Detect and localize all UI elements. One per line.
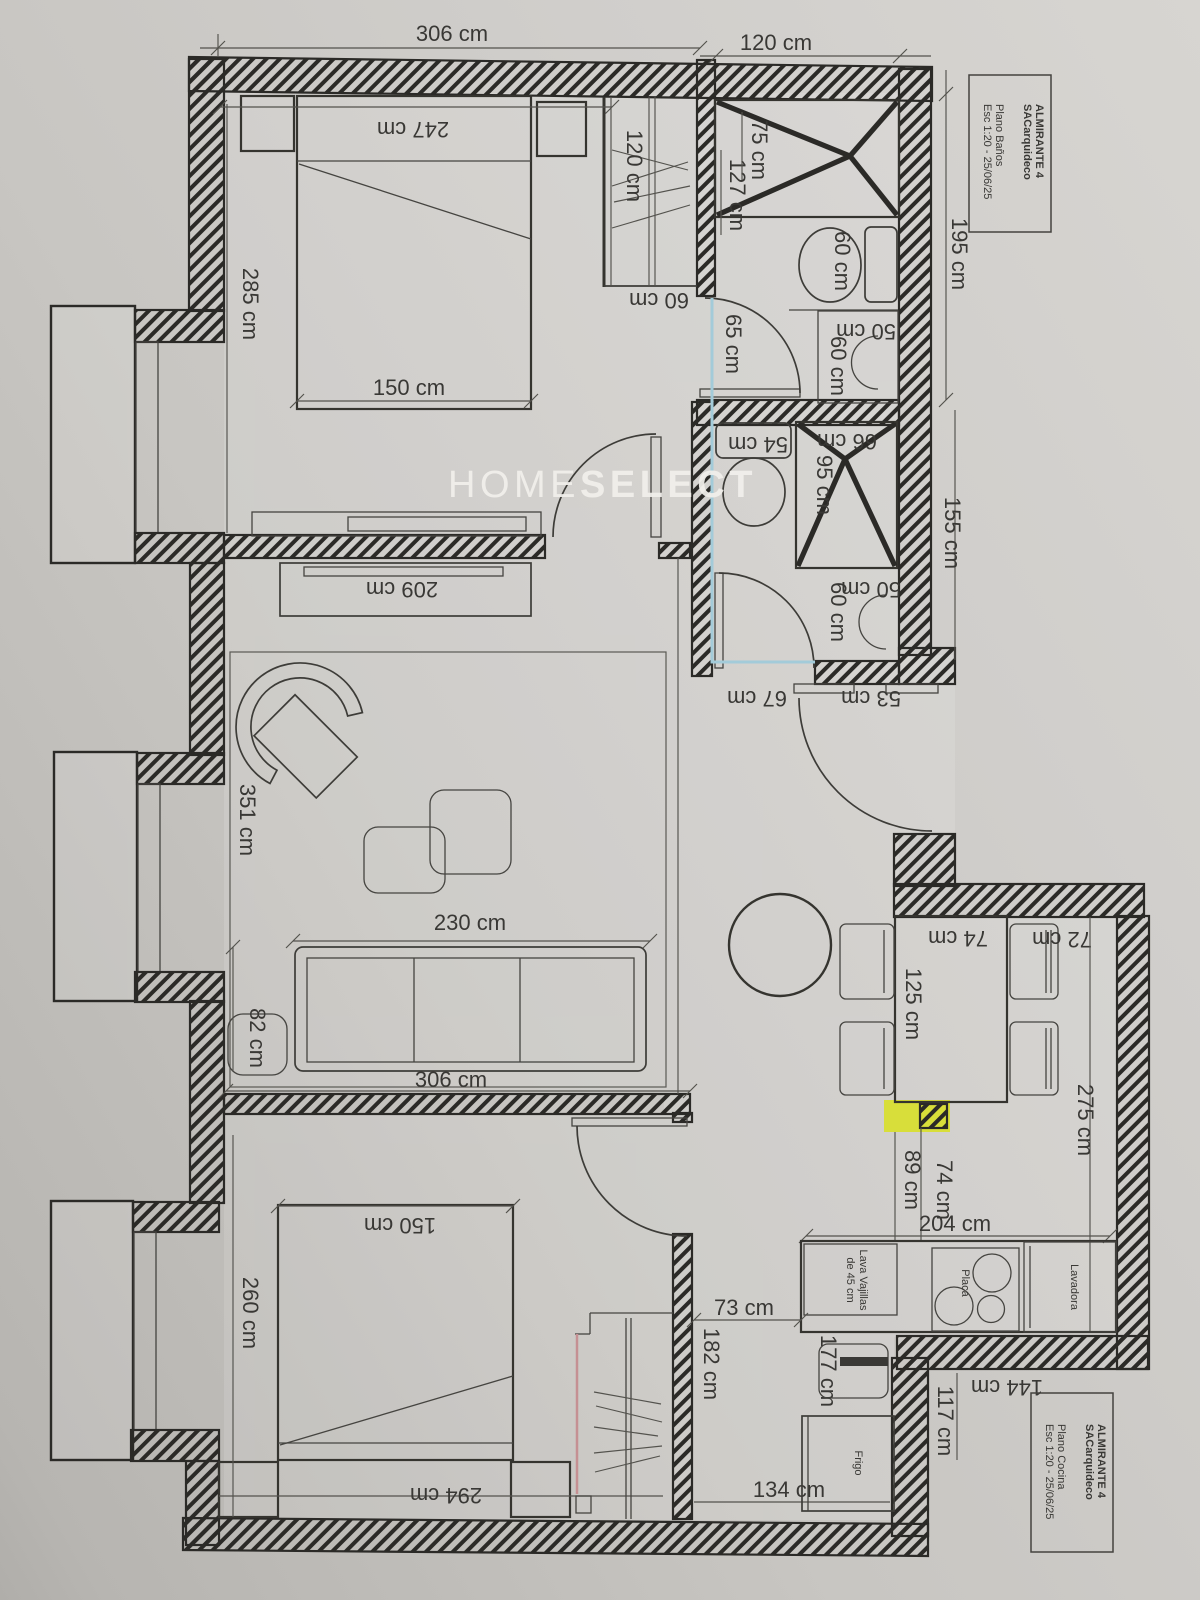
svg-text:ALMIRANTE 4: ALMIRANTE 4 [1033,104,1045,179]
svg-text:182 cm: 182 cm [699,1328,724,1400]
svg-text:60 cm: 60 cm [830,231,855,291]
svg-text:ALMIRANTE 4: ALMIRANTE 4 [1095,1424,1107,1499]
svg-text:Plano Cocina: Plano Cocina [1055,1424,1067,1490]
svg-text:306 cm: 306 cm [415,1067,487,1092]
svg-text:Plano Baños: Plano Baños [993,104,1005,167]
svg-text:204 cm: 204 cm [919,1211,991,1236]
svg-text:Esc 1:20 - 25/06/25: Esc 1:20 - 25/06/25 [1043,1424,1055,1519]
svg-text:Lavadora: Lavadora [1068,1264,1080,1311]
svg-text:60 cm: 60 cm [629,288,689,313]
svg-text:72 cm: 72 cm [1032,927,1092,952]
svg-text:53 cm: 53 cm [841,686,901,711]
svg-text:SACarquideco: SACarquideco [1083,1424,1095,1500]
svg-text:Frigo: Frigo [852,1450,864,1475]
svg-text:150 cm: 150 cm [364,1213,436,1238]
svg-text:285 cm: 285 cm [238,268,263,340]
svg-text:120 cm: 120 cm [622,130,647,202]
svg-text:60 cm: 60 cm [826,582,851,642]
svg-text:66 cm: 66 cm [817,429,877,454]
svg-text:65 cm: 65 cm [721,314,746,374]
svg-text:54 cm: 54 cm [728,432,788,457]
svg-text:de 45 cm: de 45 cm [844,1257,856,1302]
svg-text:247 cm: 247 cm [377,117,449,142]
svg-text:74 cm: 74 cm [928,926,988,951]
svg-text:SACarquideco: SACarquideco [1021,104,1033,180]
svg-text:60 cm: 60 cm [826,336,851,396]
svg-text:HOMESELECT: HOMESELECT [448,464,757,506]
svg-text:260 cm: 260 cm [238,1277,263,1349]
svg-text:134 cm: 134 cm [753,1477,825,1502]
svg-text:177 cm: 177 cm [816,1335,841,1407]
svg-text:82 cm: 82 cm [245,1008,270,1068]
svg-text:209 cm: 209 cm [366,577,438,602]
svg-text:144 cm: 144 cm [971,1375,1043,1400]
svg-text:125 cm: 125 cm [901,968,926,1040]
svg-text:294 cm: 294 cm [410,1483,482,1508]
svg-text:Lava Vajillas: Lava Vajillas [857,1250,869,1311]
svg-text:351 cm: 351 cm [235,784,260,856]
svg-text:120 cm: 120 cm [740,30,812,55]
svg-text:275 cm: 275 cm [1073,1084,1098,1156]
svg-text:306 cm: 306 cm [416,21,488,46]
svg-text:127 cm: 127 cm [725,159,750,231]
svg-text:230 cm: 230 cm [434,910,506,935]
svg-text:Placa: Placa [959,1269,971,1297]
svg-text:155 cm: 155 cm [940,497,965,569]
svg-text:117 cm: 117 cm [933,1386,958,1457]
svg-text:Esc 1:20 - 25/06/25: Esc 1:20 - 25/06/25 [981,104,993,199]
svg-text:95 cm: 95 cm [812,455,837,515]
svg-text:67 cm: 67 cm [727,686,787,711]
svg-text:150 cm: 150 cm [373,375,445,400]
svg-text:73 cm: 73 cm [714,1295,774,1320]
